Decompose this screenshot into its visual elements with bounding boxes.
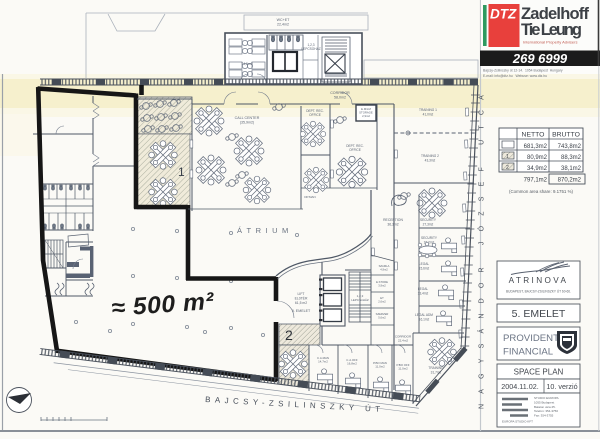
svg-text:EUROPA STUDIO KFT: EUROPA STUDIO KFT (502, 420, 533, 424)
svg-text:5. EMELET: 5. EMELET (292, 309, 311, 313)
svg-text:Balaton utca 25.: Balaton utca 25. (534, 405, 556, 409)
svg-text:Bajcsy-Zsilinszky út 12-14. 1: Bajcsy-Zsilinszky út 12-14. 1054 Budapes… (483, 69, 563, 73)
svg-text:TRAINING: TRAINING (428, 366, 444, 370)
svg-text:15,6m2: 15,6m2 (419, 267, 430, 271)
svg-text:Fax: 354-3755: Fax: 354-3755 (534, 414, 554, 418)
svg-text:1055 Budapest: 1055 Budapest (534, 400, 554, 404)
svg-text:2,9m2: 2,9m2 (362, 114, 370, 118)
svg-text:743,8m2: 743,8m2 (558, 144, 582, 150)
svg-text:88,3m2: 88,3m2 (561, 155, 582, 161)
svg-text:E-mail: info@dtz.hu Webuse:: E-mail: info@dtz.hu Webuse: www.dtz.hu (483, 74, 547, 78)
svg-text:BRUTTO: BRUTTO (552, 132, 580, 139)
svg-text:ET: ET (380, 296, 384, 300)
svg-text:OFFICE: OFFICE (349, 148, 361, 152)
svg-text:16,8m2: 16,8m2 (347, 362, 357, 366)
svg-text:34,9m2: 34,9m2 (527, 166, 548, 172)
svg-text:DTZ: DTZ (490, 7, 517, 22)
svg-text:ATRINOVA: ATRINOVA (509, 276, 569, 285)
svg-text:RECEPTION: RECEPTION (383, 218, 403, 222)
svg-text:SZAMLA: SZAMLA (379, 264, 390, 268)
svg-text:2004.11.02.: 2004.11.02. (501, 382, 538, 391)
svg-text:LIFT: LIFT (298, 292, 305, 296)
svg-text:FINANCIAL: FINANCIAL (503, 347, 554, 358)
svg-text:797,1m2: 797,1m2 (524, 178, 548, 184)
svg-text:International Property Adviser: International Property Advisers (523, 40, 577, 45)
svg-text:SECURITY: SECURITY (421, 236, 438, 240)
svg-text:CORRIDOR: CORRIDOR (330, 91, 350, 95)
svg-text:2: 2 (285, 327, 293, 343)
svg-text:LEGAL: LEGAL (418, 287, 429, 291)
svg-text:2,6m2: 2,6m2 (378, 299, 386, 303)
svg-text:5. EMELET: 5. EMELET (512, 308, 566, 320)
svg-text:TRAINING 2: TRAINING 2 (421, 154, 439, 158)
svg-text:681,3m2: 681,3m2 (524, 144, 548, 150)
svg-text:STUDIO EUROPA: STUDIO EUROPA (534, 396, 559, 400)
svg-text:1: 1 (178, 165, 185, 179)
svg-text:1: 1 (506, 154, 509, 160)
svg-text:DP.MAN: DP.MAN (304, 195, 315, 199)
svg-text:38,1m2: 38,1m2 (561, 166, 582, 172)
svg-text:ÁTRIUM: ÁTRIUM (237, 226, 293, 235)
svg-text:LEPCSOHAZ: LEPCSOHAZ (301, 47, 320, 51)
svg-text:NETTO: NETTO (522, 132, 545, 139)
svg-text:13,4m2: 13,4m2 (418, 292, 429, 296)
svg-text:(35,9m2): (35,9m2) (240, 121, 254, 125)
svg-text:22,4m2: 22,4m2 (398, 338, 408, 342)
svg-text:LEGAL: LEGAL (419, 262, 430, 266)
svg-text:Telefon: 354-3750: Telefon: 354-3750 (534, 409, 558, 413)
svg-text:SPACE PLAN: SPACE PLAN (514, 368, 564, 377)
svg-text:74,9m2: 74,9m2 (241, 62, 252, 66)
svg-text:PROVIDENT: PROVIDENT (503, 333, 559, 344)
svg-text:(Common area share: 9.1751 %): (Common area share: 9.1751 %) (509, 189, 573, 194)
svg-text:CALL CENTER: CALL CENTER (235, 116, 260, 120)
svg-text:Tie Leung: Tie Leung (521, 21, 582, 39)
svg-text:LEGAL ADM: LEGAL ADM (415, 313, 433, 317)
svg-text:58,0m2: 58,0m2 (334, 96, 346, 100)
svg-text:4,9m2: 4,9m2 (380, 267, 388, 271)
svg-text:SZERVER: SZERVER (376, 312, 389, 316)
svg-text:LEPCSőHÁZ: LEPCSőHÁZ (351, 298, 369, 302)
svg-text:WC+ET: WC+ET (277, 18, 290, 22)
svg-text:NAGYSÁNDOR JÓZSEF UTCA: NAGYSÁNDOR JÓZSEF UTCA (477, 85, 486, 409)
svg-text:22,4m2: 22,4m2 (277, 23, 289, 27)
svg-text:SECURITY: SECURITY (420, 218, 437, 222)
svg-text:870,2m2: 870,2m2 (558, 178, 582, 184)
svg-text:14,7m2: 14,7m2 (318, 360, 328, 364)
svg-text:16,1m2: 16,1m2 (419, 318, 430, 322)
svg-text:80,9m2: 80,9m2 (527, 155, 548, 161)
svg-text:10. verzió: 10. verzió (546, 382, 577, 391)
svg-text:BUDAPEST, BAJCSY-ZSILINSZKY ÚT: BUDAPEST, BAJCSY-ZSILINSZKY ÚT 60-66. (506, 289, 571, 294)
svg-text:11,0m2: 11,0m2 (375, 365, 385, 369)
svg-text:11,0m2: 11,0m2 (398, 367, 408, 371)
svg-text:269 6999: 269 6999 (512, 51, 568, 66)
svg-text:3,9m2: 3,9m2 (378, 283, 386, 287)
svg-text:43,3m2: 43,3m2 (425, 159, 436, 163)
svg-text:OFFICE: OFFICE (309, 113, 321, 117)
svg-text:TRAINING 1: TRAINING 1 (419, 108, 437, 112)
svg-text:5,6m2: 5,6m2 (378, 315, 386, 319)
svg-text:2: 2 (506, 165, 509, 171)
svg-text:36,3m2: 36,3m2 (387, 223, 398, 227)
svg-text:41,0m2: 41,0m2 (423, 113, 434, 117)
svg-text:27,3m2: 27,3m2 (423, 223, 434, 227)
svg-text:E.STORE: E.STORE (376, 280, 388, 284)
svg-text:61,5 m2: 61,5 m2 (295, 301, 307, 305)
svg-text:ELőTÉR: ELőTÉR (295, 296, 308, 301)
